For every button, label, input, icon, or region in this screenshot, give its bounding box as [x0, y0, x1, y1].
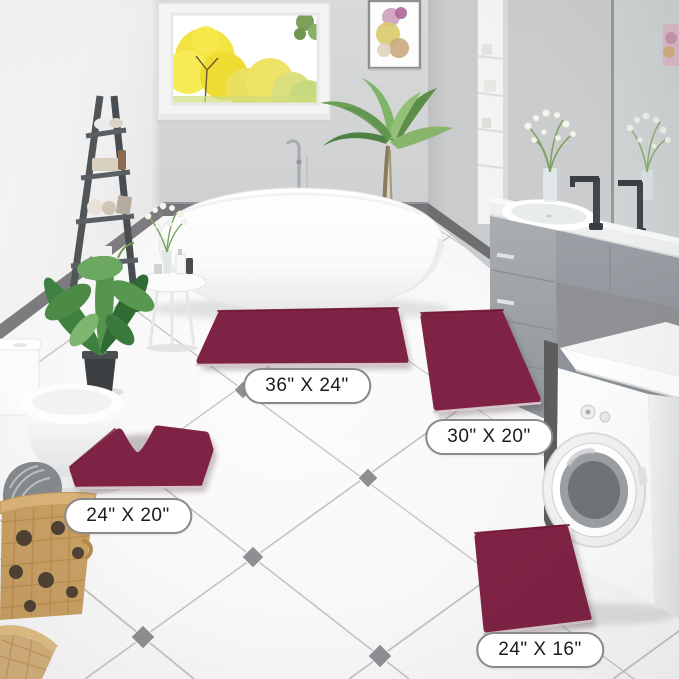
size-label-30x20: 30" X 20" — [425, 419, 553, 455]
size-label-36x24: 36" X 24" — [243, 368, 371, 404]
rug-24x16 — [479, 529, 587, 629]
potted-plant — [39, 254, 159, 397]
small-basket — [0, 625, 58, 679]
shelf-unit — [476, 0, 508, 224]
bathroom-scene: 36" X 24" 30" X 20" 24" X 20" 24" X 16" — [0, 0, 679, 679]
window — [158, 3, 330, 123]
size-label-24x20: 24" X 20" — [64, 498, 192, 534]
size-label-24x16: 24" X 16" — [476, 632, 604, 668]
wall-art-frame — [369, 1, 420, 71]
bathtub — [150, 188, 450, 321]
flower-vase — [524, 109, 576, 202]
scene-art — [0, 0, 679, 679]
rugs — [70, 308, 596, 640]
rug-36x24 — [201, 312, 404, 361]
